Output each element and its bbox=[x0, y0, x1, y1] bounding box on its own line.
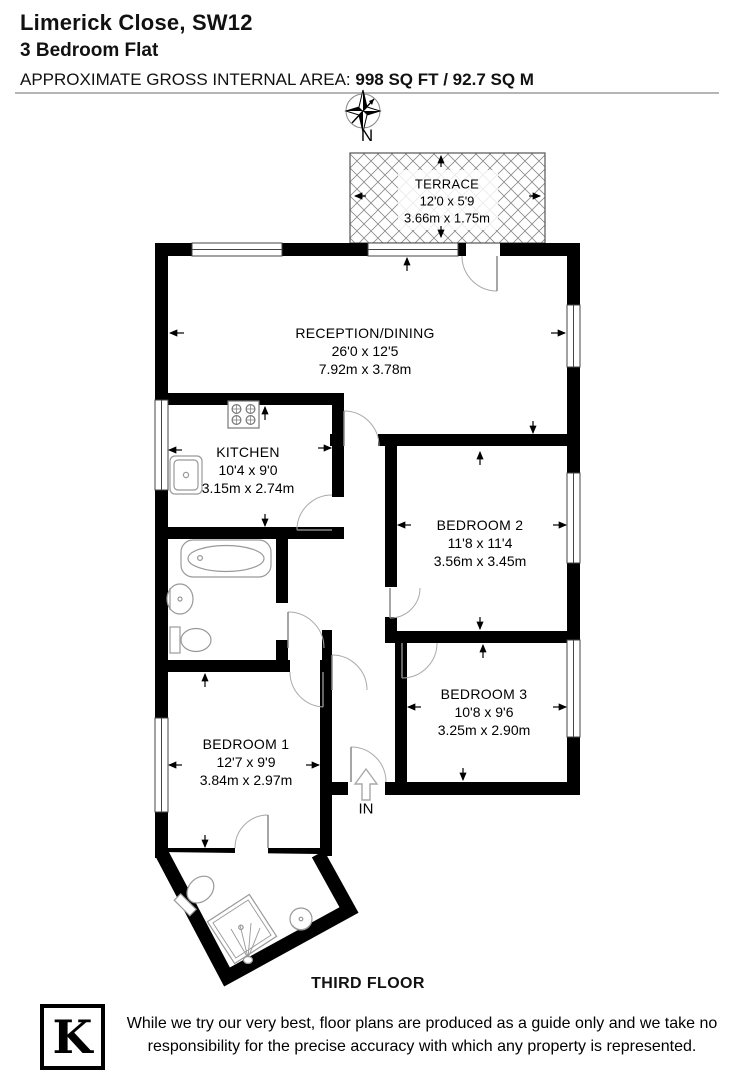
agency-logo-letter: K bbox=[53, 1014, 93, 1060]
room-name: KITCHEN bbox=[202, 443, 295, 461]
window bbox=[567, 473, 580, 563]
floor-plan-svg bbox=[0, 0, 734, 1080]
door-arc bbox=[390, 588, 420, 618]
door-arc bbox=[344, 411, 379, 446]
room-label-bedroom1: BEDROOM 1 12'7 x 9'9 3.84m x 2.97m bbox=[200, 735, 293, 789]
window bbox=[567, 305, 580, 367]
entrance-label: IN bbox=[359, 801, 374, 818]
kitchen-sink-icon bbox=[170, 456, 202, 494]
window bbox=[155, 718, 168, 812]
window bbox=[567, 640, 580, 737]
room-name: RECEPTION/DINING bbox=[295, 324, 434, 342]
room-dims-m: 3.84m x 2.97m bbox=[200, 771, 293, 789]
door-arc bbox=[290, 672, 323, 707]
window bbox=[155, 400, 168, 490]
bathroom-sink-icon bbox=[167, 584, 193, 614]
room-dims-m: 3.15m x 2.74m bbox=[202, 479, 295, 497]
room-label-bedroom2: BEDROOM 2 11'8 x 11'4 3.56m x 3.45m bbox=[434, 516, 527, 570]
floor-level-label: THIRD FLOOR bbox=[311, 975, 425, 993]
door-arc bbox=[297, 495, 332, 530]
room-label-terrace: TERRACE 12'0 x 5'9 3.66m x 1.75m bbox=[404, 176, 490, 227]
room-name: BEDROOM 2 bbox=[434, 516, 527, 534]
toilet-icon bbox=[170, 627, 211, 653]
room-dims-ft: 10'8 x 9'6 bbox=[438, 703, 531, 721]
room-dims-m: 3.66m x 1.75m bbox=[404, 210, 490, 227]
room-dims-ft: 12'0 x 5'9 bbox=[404, 193, 490, 210]
disclaimer-text: While we try our very best, floor plans … bbox=[122, 1012, 722, 1058]
door-arc bbox=[462, 256, 497, 291]
room-dims-ft: 11'8 x 11'4 bbox=[434, 534, 527, 552]
stove-icon bbox=[228, 401, 259, 428]
door-arc bbox=[288, 612, 324, 648]
entrance-arrow-icon bbox=[355, 769, 377, 800]
floor-plan-page: Limerick Close, SW12 3 Bedroom Flat APPR… bbox=[0, 0, 734, 1080]
room-dims-ft: 10'4 x 9'0 bbox=[202, 461, 295, 479]
room-dims-ft: 26'0 x 12'5 bbox=[295, 342, 434, 360]
room-dims-ft: 12'7 x 9'9 bbox=[200, 753, 293, 771]
door-arc bbox=[332, 655, 367, 690]
room-dims-m: 3.25m x 2.90m bbox=[438, 721, 531, 739]
room-name: BEDROOM 1 bbox=[200, 735, 293, 753]
room-name: BEDROOM 3 bbox=[438, 685, 531, 703]
window bbox=[192, 243, 282, 256]
door-arc bbox=[235, 815, 268, 848]
room-dims-m: 3.56m x 3.45m bbox=[434, 552, 527, 570]
room-label-bedroom3: BEDROOM 3 10'8 x 9'6 3.25m x 2.90m bbox=[438, 685, 531, 739]
round-sink-icon bbox=[290, 908, 312, 930]
door-arc bbox=[402, 643, 437, 678]
bathtub-icon bbox=[181, 540, 271, 577]
room-dims-m: 7.92m x 3.78m bbox=[295, 360, 434, 378]
compass-north-label: N bbox=[361, 126, 373, 146]
room-label-kitchen: KITCHEN 10'4 x 9'0 3.15m x 2.74m bbox=[202, 443, 295, 497]
window bbox=[368, 243, 458, 256]
room-label-reception: RECEPTION/DINING 26'0 x 12'5 7.92m x 3.7… bbox=[295, 324, 434, 378]
agency-logo: K bbox=[40, 1004, 105, 1070]
room-name: TERRACE bbox=[404, 176, 490, 193]
